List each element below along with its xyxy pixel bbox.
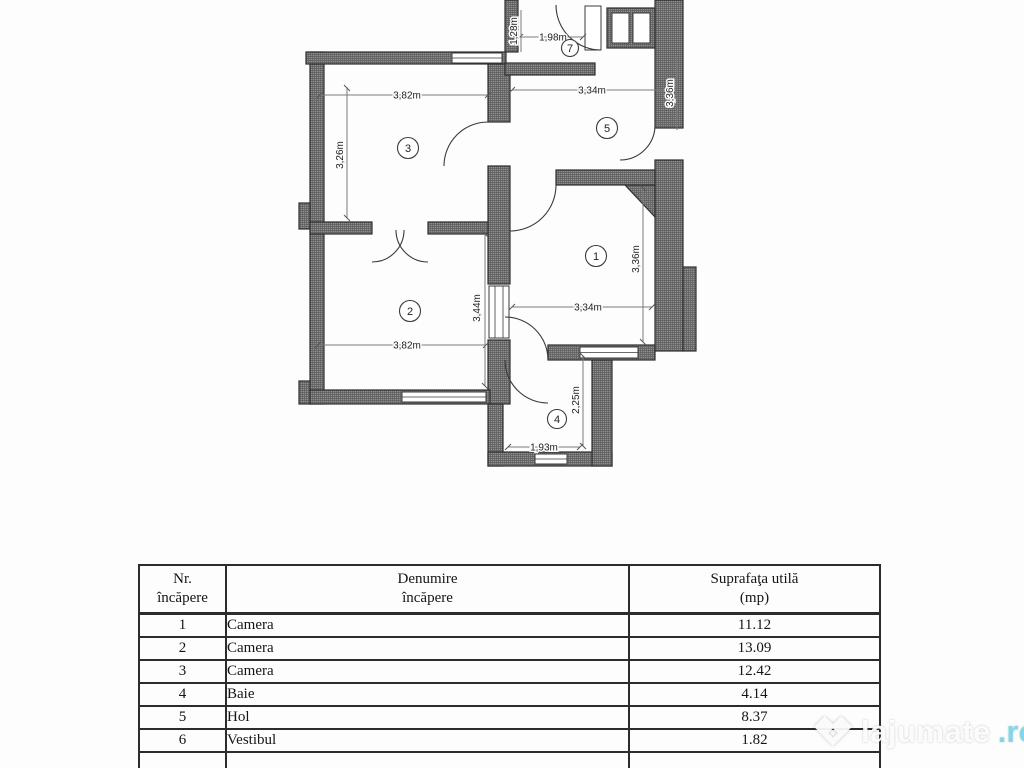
dimension-room3-width: 3,82m: [317, 91, 491, 102]
wall-left-bump-upper: [299, 203, 310, 229]
wall-room4-right: [592, 350, 612, 466]
room-name: Vestibul: [226, 729, 629, 752]
svg-text:4: 4: [554, 414, 560, 426]
wall-left-bump-lower: [299, 381, 310, 404]
wall-divider-room3-room2-right: [428, 222, 490, 234]
window-room4-bottom: [535, 454, 567, 464]
watermark-tld: .ro: [998, 714, 1024, 750]
svg-text:5: 5: [604, 123, 610, 135]
svg-text:3,34m: 3,34m: [574, 303, 602, 314]
room-number-2: 2: [400, 301, 421, 322]
room-number-3: 3: [398, 138, 419, 159]
room-area: 1.82: [629, 729, 880, 752]
door-arc-room1: [510, 185, 556, 231]
table-row: 2 Camera 13.09: [139, 637, 880, 660]
room-number-7: 7: [562, 40, 579, 57]
wall-right-outer-bump: [683, 267, 696, 351]
room-name: Camera: [226, 637, 629, 660]
door-arc-room2-left: [372, 230, 404, 262]
room-areas-table: Nr. încăpere Denumire încăpere Suprafaţa…: [138, 564, 879, 768]
door-arc-room3: [444, 122, 488, 166]
svg-text:1: 1: [593, 251, 599, 263]
window-room3-top: [452, 53, 502, 63]
svg-text:1,28m: 1,28m: [509, 17, 520, 45]
svg-text:1,93m: 1,93m: [530, 443, 558, 454]
window-room2-bottom: [402, 392, 486, 402]
svg-text:2: 2: [407, 306, 413, 318]
svg-text:3,36m: 3,36m: [665, 79, 676, 107]
wall-central-middle: [488, 166, 510, 284]
wall-divider-room3-room2-left: [310, 222, 372, 234]
svg-text:3: 3: [405, 143, 411, 155]
dimension-room1-height: 3,36m: [631, 185, 646, 345]
wall-right-upper: [655, 0, 683, 128]
dimension-room4-height: 2,25m: [571, 353, 586, 449]
wall-right-lower: [655, 160, 683, 351]
door-arc-hall-right: [620, 125, 655, 160]
room-number-1: 1: [586, 246, 607, 267]
svg-text:1,98m: 1,98m: [539, 33, 567, 44]
row-number: 1: [139, 614, 226, 638]
dimension-room1-width: 3,34m: [509, 303, 655, 314]
room-name: Camera: [226, 660, 629, 683]
header-suprafata-utila: Suprafaţa utilă (mp): [629, 565, 880, 614]
row-number: 5: [139, 706, 226, 729]
header-denumire-incapere: Denumire încăpere: [226, 565, 629, 614]
table-row: 4 Baie 4.14: [139, 683, 880, 706]
room-name: Camera: [226, 614, 629, 638]
room-area: 11.12: [629, 614, 880, 638]
wall-divider-room5-room1: [556, 170, 655, 185]
table-header-row: Nr. încăpere Denumire încăpere Suprafaţa…: [139, 565, 880, 614]
dimension-room3-height: 3,26m: [335, 85, 350, 221]
row-number: 6: [139, 729, 226, 752]
svg-text:3,34m: 3,34m: [578, 86, 606, 97]
svg-text:3,82m: 3,82m: [393, 91, 421, 102]
dimension-room2-width: 3,82m: [315, 341, 489, 352]
scanned-floorplan-page: 3,82m 3,26m 3,34m 3,36m 3,34m: [0, 0, 1024, 768]
door-arc-room2-right: [396, 230, 428, 262]
table-row: 5 Hol 8.37: [139, 706, 880, 729]
wall-chamfer-room1: [625, 185, 655, 217]
door-arc-room4-out: [505, 317, 548, 360]
svg-text:3,26m: 3,26m: [335, 141, 346, 169]
table-row-empty: [139, 752, 880, 768]
row-number: 3: [139, 660, 226, 683]
dimension-room2-height: 3,44m: [472, 231, 488, 389]
room-area: 8.37: [629, 706, 880, 729]
room-area: 4.14: [629, 683, 880, 706]
window-central-wall: [489, 286, 509, 338]
table-row: 1 Camera 11.12: [139, 614, 880, 638]
room-name: Hol: [226, 706, 629, 729]
header-nr-incapere: Nr. încăpere: [139, 565, 226, 614]
room-number-4: 4: [548, 410, 567, 429]
row-number: 2: [139, 637, 226, 660]
room-area: 13.09: [629, 637, 880, 660]
table-row: 6 Vestibul 1.82: [139, 729, 880, 752]
table-row: 3 Camera 12.42: [139, 660, 880, 683]
window-room1-bottom: [580, 347, 638, 358]
svg-text:7: 7: [567, 43, 573, 55]
floor-plan: 3,82m 3,26m 3,34m 3,36m 3,34m: [0, 0, 1024, 556]
svg-text:3,44m: 3,44m: [472, 294, 483, 322]
dimension-room5-width: 3,34m: [509, 86, 675, 97]
svg-text:3,82m: 3,82m: [393, 341, 421, 352]
room-area: 12.42: [629, 660, 880, 683]
door-arc-room4-in: [505, 360, 548, 403]
walls: [299, 0, 696, 466]
room-number-5: 5: [597, 118, 618, 139]
wall-room7-bottom: [505, 63, 595, 75]
room-name: Baie: [226, 683, 629, 706]
svg-text:3,36m: 3,36m: [631, 245, 642, 273]
entry-door-panels: [585, 6, 650, 50]
svg-text:2,25m: 2,25m: [571, 386, 582, 414]
row-number: 4: [139, 683, 226, 706]
